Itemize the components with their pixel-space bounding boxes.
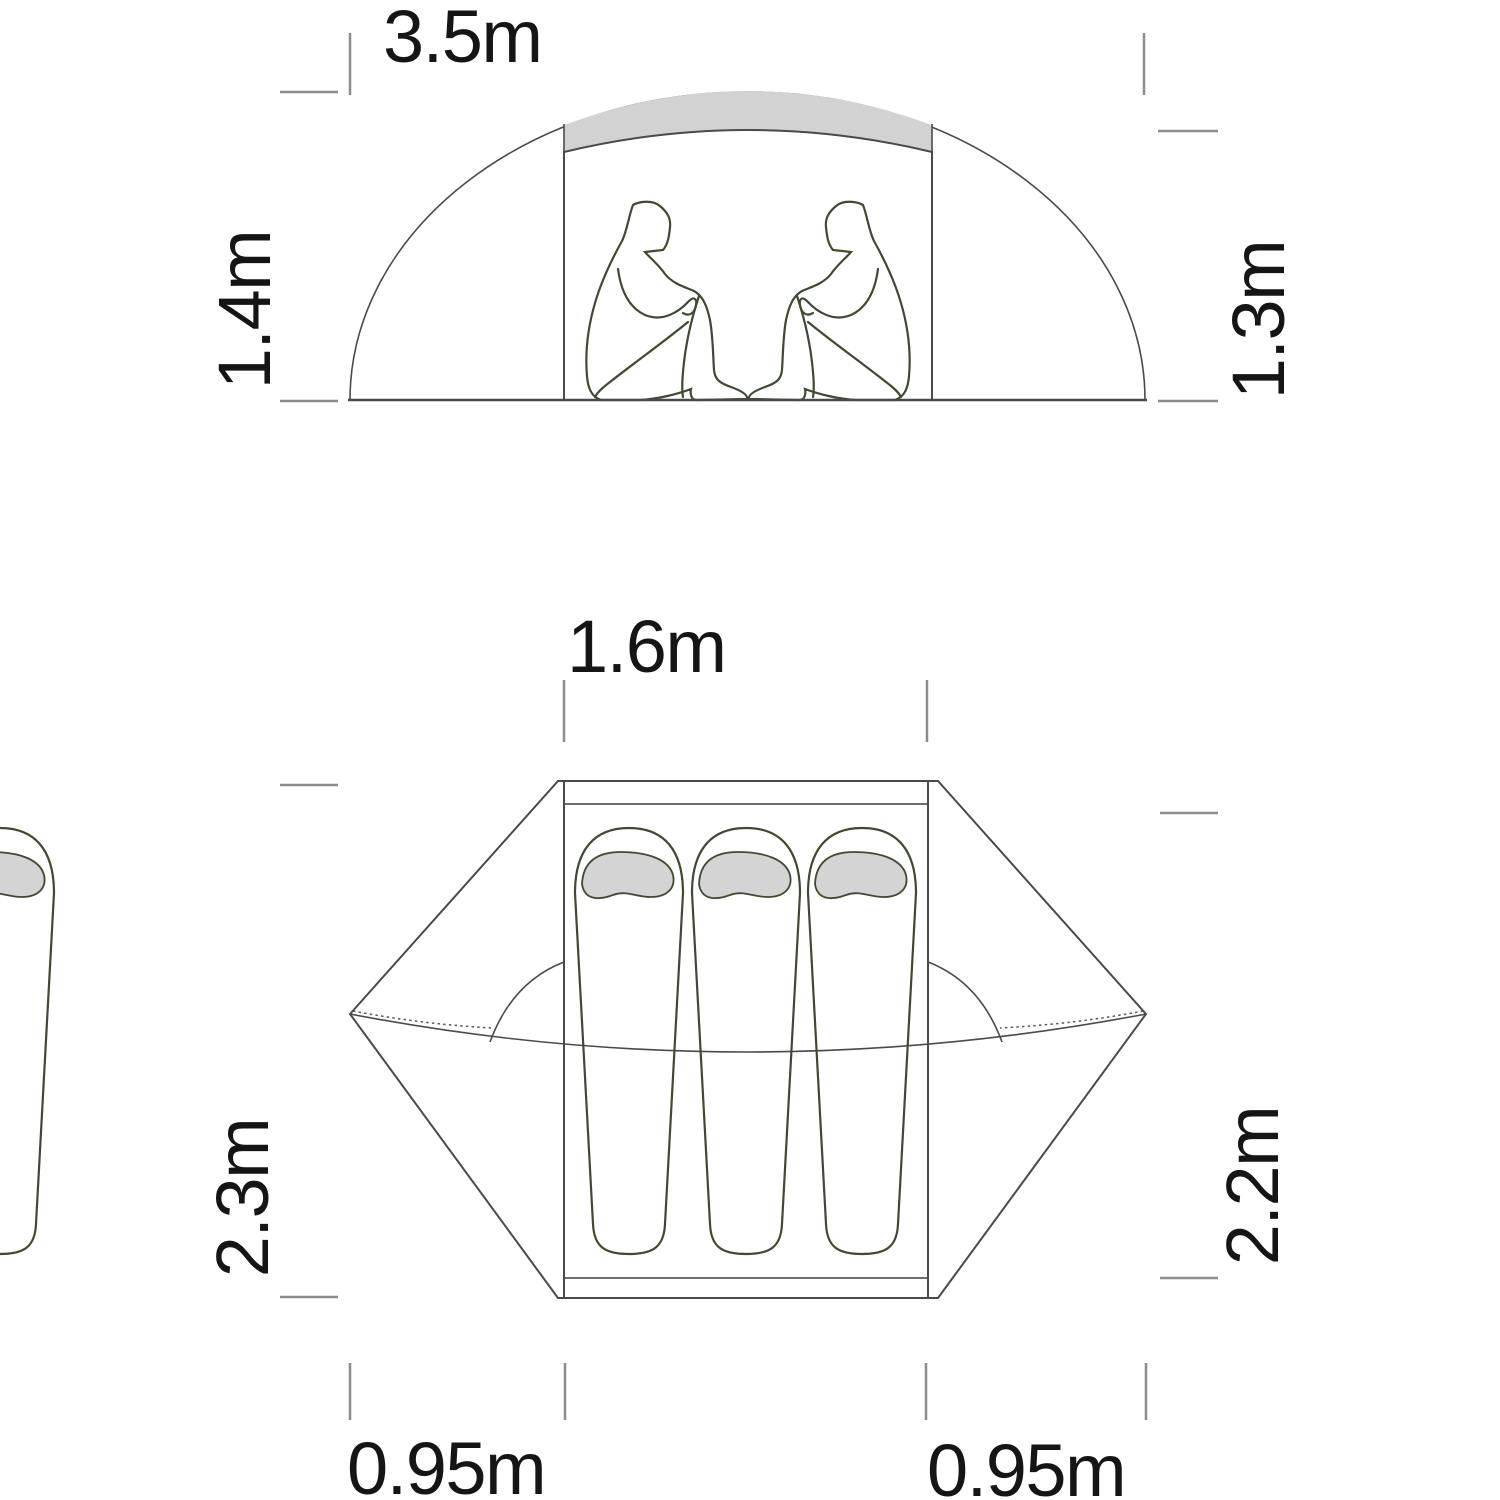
person-thigh-line — [595, 322, 688, 397]
fly-door-edge-curve — [350, 1014, 1146, 1052]
dimension-inner-width: 1.6m — [564, 605, 927, 742]
seated-person-right — [749, 202, 910, 400]
fly-band — [564, 91, 932, 152]
person-shin-line — [682, 296, 699, 397]
door-arc-right — [928, 962, 1002, 1042]
fly-seam-dotted-left — [353, 1011, 492, 1028]
dimension-inner-length: 2.2m — [1160, 813, 1294, 1278]
tent-dimensions-diagram: 3.5m 1.4m 1.3m — [0, 0, 1500, 1500]
inner-end-strip-top — [564, 781, 928, 804]
inner-height-label: 1.3m — [1217, 241, 1300, 400]
width-label: 3.5m — [383, 0, 542, 78]
door-arc-left — [490, 962, 564, 1042]
dimension-right-vestibule: 0.95m — [926, 1363, 1146, 1500]
sleeping-bag-3 — [808, 828, 916, 1254]
dimension-left-vestibule: 0.95m — [347, 1363, 565, 1500]
dimension-outer-height: 1.4m — [203, 92, 338, 401]
sleeping-bag-1 — [575, 828, 683, 1254]
sleeping-bag-2 — [692, 828, 800, 1254]
outer-height-label: 1.4m — [203, 231, 286, 390]
sleeping-bag-shape — [0, 828, 54, 1254]
person-silhouette — [586, 202, 747, 400]
seated-occupants — [586, 202, 909, 400]
left-vestibule-label: 0.95m — [347, 1427, 545, 1500]
dimension-inner-height: 1.3m — [1158, 131, 1300, 401]
floor-plan: 1.6m 2.3m 2.2m 0.95m 0.95m — [0, 605, 1294, 1500]
dimension-outer-length: 2.3m — [201, 785, 338, 1297]
side-view: 3.5m 1.4m 1.3m — [203, 0, 1300, 401]
inner-tent-section — [564, 130, 932, 400]
right-vestibule-label: 0.95m — [927, 1429, 1125, 1500]
inner-length-label: 2.2m — [1211, 1107, 1294, 1266]
inner-end-strip-bottom — [564, 1278, 928, 1298]
inner-width-label: 1.6m — [567, 605, 726, 688]
person-arm-line — [618, 269, 696, 317]
dimension-total-width: 3.5m — [350, 0, 1144, 95]
outer-length-label: 2.3m — [201, 1119, 284, 1278]
seated-person-left — [586, 202, 747, 400]
sleeping-bag-hood-opening — [0, 852, 45, 898]
fly-dome-outline — [350, 92, 1145, 400]
fly-seam-dotted-right — [1000, 1011, 1143, 1028]
